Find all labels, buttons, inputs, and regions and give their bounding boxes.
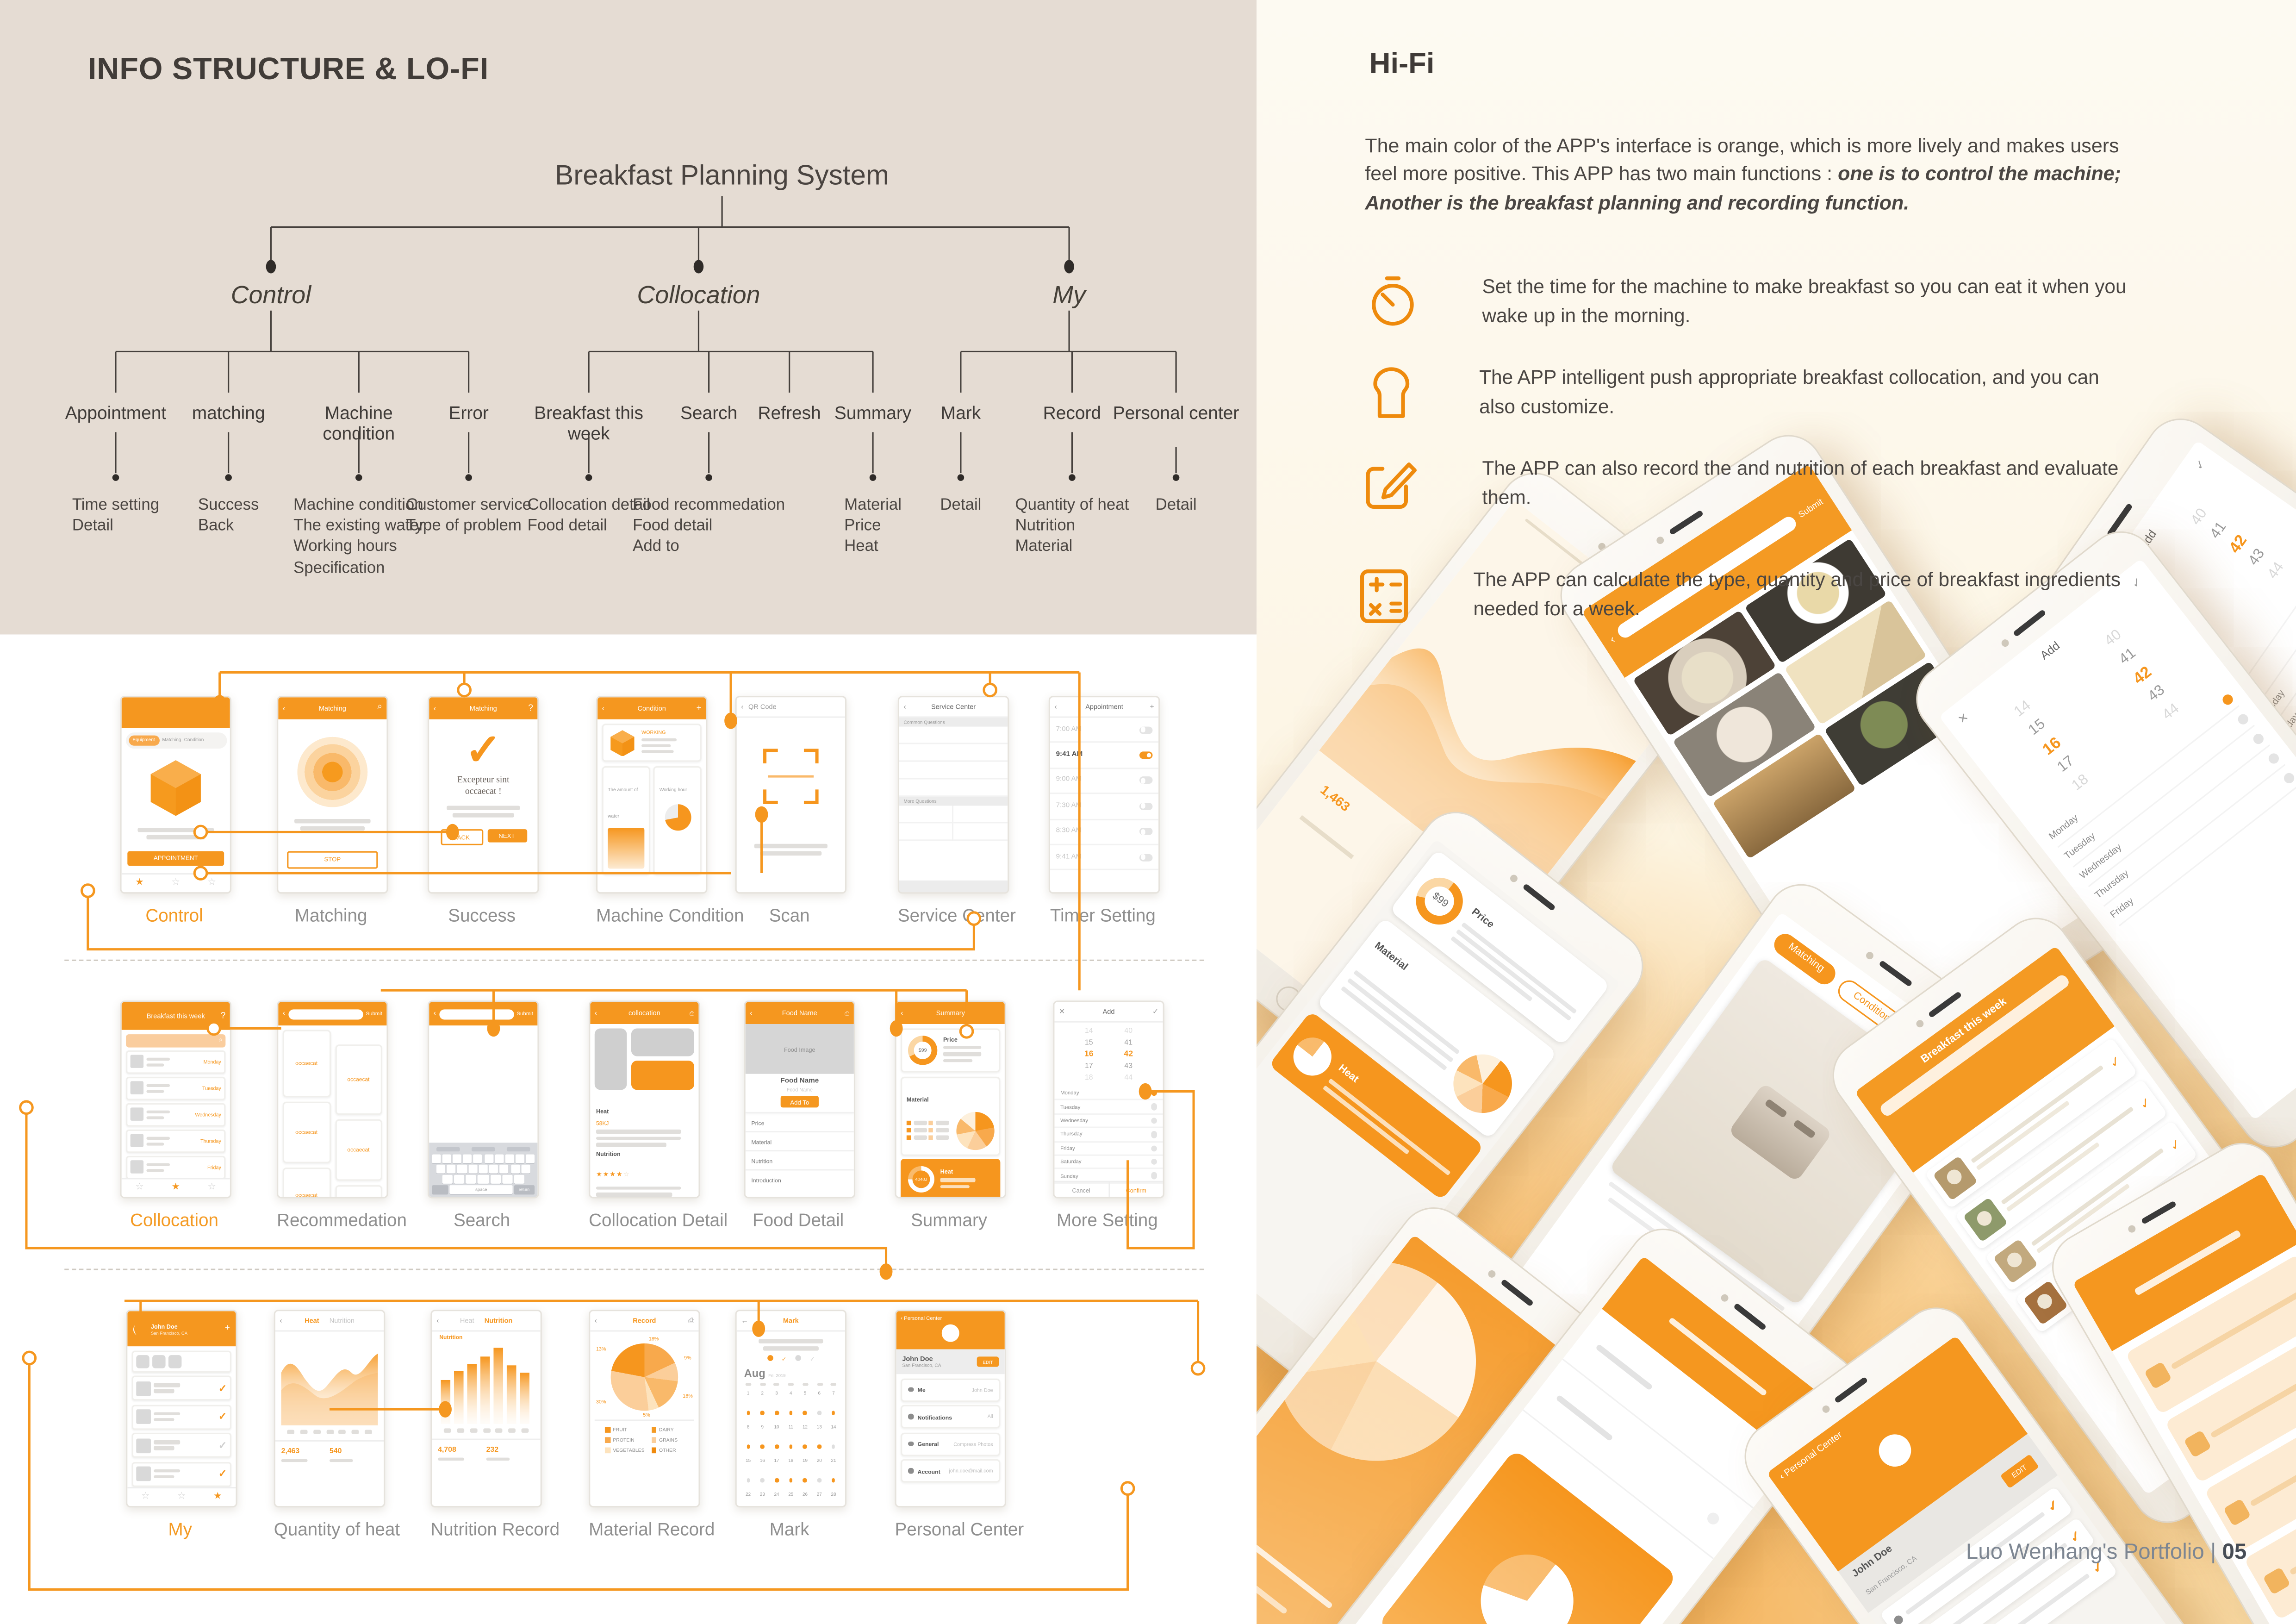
- calculator-icon: [1356, 565, 1412, 627]
- lofi-screen-collocation: Breakfast this week? ⌕ MondayTuesdayWedn…: [120, 1000, 228, 1230]
- wireframe-caption: Scan: [735, 906, 844, 926]
- row-divider: [64, 960, 1204, 961]
- wireframe-thumbnail: ‹Record⎙ 18% 9% 16% 5% 30% 13% FRUITDAIR…: [589, 1310, 700, 1507]
- phone-earpiece: [1523, 883, 1556, 911]
- phone-earpiece: [1928, 991, 1962, 1018]
- lofi-screen-more-setting: ✕Add✓ 1415161718 4041424344 MondayTuesda…: [1053, 1000, 1161, 1230]
- tree-leaf: matching: [158, 404, 299, 424]
- tree-branch-control: Control: [231, 281, 311, 311]
- tree-root-label: Breakfast Planning System: [555, 161, 889, 194]
- wireframe-thumbnail: ‹Submit spacereturn: [428, 1000, 539, 1198]
- wireframe-thumbnail: ‹Submit occaecatoccaecatoccaecat occaeca…: [277, 1000, 388, 1198]
- phone-camera: [1821, 1404, 1831, 1414]
- wireframe-thumbnail: Equipment MatchingCondition APPOINTMENT …: [120, 696, 231, 893]
- tree-leaf: Personal center: [1106, 404, 1246, 424]
- feature-text: The APP intelligent push appropriate bre…: [1479, 363, 2135, 421]
- tree-leaf-details: Customer serviceType of problem: [406, 495, 531, 537]
- feature-text: Set the time for the machine to make bre…: [1482, 273, 2138, 330]
- lofi-screen-matching: ‹Matching⌕ STOPMatching: [277, 696, 385, 926]
- lofi-screen-food-detail: ‹Food Name⎙ Food Image Food Name Food Na…: [744, 1000, 852, 1230]
- phone-earpiece: [1668, 510, 1702, 535]
- tree-leaf: Breakfast this week: [518, 404, 659, 443]
- wireframe-thumbnail: ‹ Personal Center John DoeSan Francisco,…: [895, 1310, 1007, 1507]
- wireframe-caption: Material Record: [589, 1519, 697, 1540]
- lofi-screen-collocation-detail: ‹collocation⎙ Heat 58KJ Nutrition ★★★★☆ …: [589, 1000, 697, 1230]
- phone-camera: [1654, 536, 1664, 546]
- wireframe-thumbnail: ‹Condition+ WORKING The amount of water …: [596, 696, 708, 893]
- lofi-screen-scan: ‹QR Code Scan: [735, 696, 844, 926]
- row-divider: [64, 1268, 1204, 1270]
- hifi-heading: Hi-Fi: [1369, 48, 1435, 82]
- phone-earpiece: [2141, 1200, 2177, 1224]
- feature-item: The APP can also record the and nutritio…: [1362, 454, 2138, 513]
- page-number: 05: [2222, 1540, 2247, 1565]
- tree-leaf-details: Food recommedationFood detailAdd to: [633, 495, 785, 558]
- wireframe-caption: Quantity of heat: [274, 1519, 382, 1540]
- phone-camera: [1509, 873, 1519, 883]
- wireframe-thumbnail: Breakfast this week? ⌕ MondayTuesdayWedn…: [120, 1000, 231, 1198]
- footer-divider: |: [2210, 1540, 2216, 1565]
- info-structure-panel: INFO STRUCTURE & LO-FI Breakfast Plannin…: [0, 0, 1257, 1624]
- tree-leaf-details: Collocation detailFood detail: [528, 495, 650, 537]
- wireframe-thumbnail: ‹Matching? ✓ Excepteur sintoccaecat ! BA…: [428, 696, 539, 893]
- feature-text: The APP can calculate the type, quantity…: [1473, 565, 2129, 623]
- lofi-screen-my: John DoeSan Francisco, CA + ✓✓✓✓ ☆☆★My: [126, 1310, 234, 1540]
- lofi-screen-quantity-of-heat: ‹HeatNutrition 2,463 540Quantity of heat: [274, 1310, 382, 1540]
- phone-earpiece: [1878, 959, 1911, 985]
- feature-text: The APP can also record the and nutritio…: [1482, 454, 2138, 512]
- hifi-panel: 1,463 546 ‹Submit ✕Add✓ 1415161718404142…: [1257, 0, 2296, 1624]
- tree-leaf-details: Quantity of heatNutritionMaterial: [1015, 495, 1129, 558]
- wireframe-thumbnail: ‹HeatNutrition 2,463 540: [274, 1310, 386, 1507]
- portfolio-page: INFO STRUCTURE & LO-FI Breakfast Plannin…: [0, 0, 2296, 1624]
- lofi-screen-mark: ←Mark ✓ ✓ AugFri. 2019 12345678910111213…: [735, 1310, 844, 1540]
- lofi-screen-search: ‹Submit spacereturnSearch: [428, 1000, 536, 1230]
- phone-earpiece: [1501, 1279, 1534, 1306]
- wireframe-caption: Food Detail: [744, 1210, 852, 1230]
- wireframe-thumbnail: ‹Matching⌕ STOP: [277, 696, 388, 893]
- lofi-screen-summary: ‹Summary Price Material 4040J HeatSummar…: [895, 1000, 1003, 1230]
- wireframe-thumbnail: John DoeSan Francisco, CA + ✓✓✓✓ ☆☆★: [126, 1310, 237, 1507]
- tree-leaf-details: MaterialPriceHeat: [844, 495, 902, 558]
- lofi-screen-nutrition-record: ‹HeatNutrition Nutrition 4,708 232Nutrit…: [430, 1310, 539, 1540]
- wireframe-thumbnail: ‹Service Center Common Questions More Qu…: [898, 696, 1009, 893]
- lofi-screen-success: ‹Matching? ✓ Excepteur sintoccaecat ! BA…: [428, 696, 536, 926]
- tree-leaf-details: SuccessBack: [198, 495, 259, 537]
- wireframe-caption: Nutrition Record: [430, 1519, 539, 1540]
- wireframe-caption: My: [126, 1519, 234, 1540]
- phone-earpiece: [1834, 1376, 1868, 1403]
- feature-item: The APP can calculate the type, quantity…: [1356, 565, 2129, 627]
- phone-camera: [1487, 1269, 1497, 1279]
- phone-camera: [1863, 949, 1873, 960]
- feature-item: The APP intelligent push appropriate bre…: [1365, 363, 2135, 422]
- wireframe-thumbnail: ‹QR Code: [735, 696, 847, 893]
- wireframe-thumbnail: ‹collocation⎙ Heat 58KJ Nutrition ★★★★☆ …: [589, 1000, 700, 1198]
- wireframe-caption: Collocation: [120, 1210, 228, 1230]
- tree-branch-collocation: Collocation: [637, 281, 760, 311]
- wireframe-caption: Mark: [735, 1519, 844, 1540]
- tree-leaf: Error: [398, 404, 539, 424]
- lofi-screen-material-record: ‹Record⎙ 18% 9% 16% 5% 30% 13% FRUITDAIR…: [589, 1310, 697, 1540]
- phone-earpiece: [1732, 1302, 1766, 1330]
- wireframe-caption: Recommedation: [277, 1210, 385, 1230]
- wireframe-thumbnail: ‹HeatNutrition Nutrition 4,708 232: [430, 1310, 542, 1507]
- edit-icon: [1362, 454, 1421, 513]
- hifi-intro-paragraph: The main color of the APP's interface is…: [1365, 132, 2147, 217]
- wireframe-caption: Timer Setting: [1049, 906, 1157, 926]
- timer-icon: [1365, 273, 1420, 331]
- phone-camera: [1718, 1293, 1729, 1303]
- wireframe-thumbnail: ‹Appointment+ 7:00 AM9:41 AM9:00 AM7:30 …: [1049, 696, 1160, 893]
- lofi-screen-control: Equipment MatchingCondition APPOINTMENT …: [120, 696, 228, 926]
- wireframe-caption: Collocation Detail: [589, 1210, 697, 1230]
- wireframe-caption: More Setting: [1053, 1210, 1161, 1230]
- wireframe-thumbnail: ‹Food Name⎙ Food Image Food Name Food Na…: [744, 1000, 856, 1198]
- tree-leaf-details: Time settingDetail: [72, 495, 159, 537]
- bread-icon: [1365, 363, 1418, 422]
- wireframe-caption: Success: [428, 906, 536, 926]
- lofi-screen-service-center: ‹Service Center Common Questions More Qu…: [898, 696, 1006, 926]
- wireframe-thumbnail: ←Mark ✓ ✓ AugFri. 2019 12345678910111213…: [735, 1310, 847, 1507]
- wireframe-thumbnail: ‹Summary Price Material 4040J Heat: [895, 1000, 1007, 1198]
- tree-branch-my: My: [1052, 281, 1086, 311]
- wireframe-caption: Matching: [277, 906, 385, 926]
- wireframe-caption: Search: [428, 1210, 536, 1230]
- lofi-screen-machine-condition: ‹Condition+ WORKING The amount of water …: [596, 696, 704, 926]
- tree-leaf-details: Machine conditionThe existing waterWorki…: [293, 495, 424, 579]
- wireframe-caption: Service Center: [898, 906, 1006, 926]
- lofi-screen-personal-center: ‹ Personal Center John DoeSan Francisco,…: [895, 1310, 1003, 1540]
- feature-item: Set the time for the machine to make bre…: [1365, 273, 2138, 331]
- phone-camera: [2127, 1224, 2137, 1234]
- wireframe-caption: Personal Center: [895, 1519, 1003, 1540]
- page-footer: Luo Wenhang's Portfolio | 05: [1966, 1540, 2246, 1565]
- phone-camera: [1999, 638, 2009, 649]
- tree-leaf-details: Detail: [1156, 495, 1197, 516]
- lofi-screen-timer-setting: ‹Appointment+ 7:00 AM9:41 AM9:00 AM7:30 …: [1049, 696, 1157, 926]
- wireframe-caption: Control: [120, 906, 228, 926]
- wireframe-caption: Summary: [895, 1210, 1003, 1230]
- phone-camera: [1915, 1018, 1925, 1029]
- left-section-title: INFO STRUCTURE & LO-FI: [88, 53, 489, 88]
- lofi-screen-recommedation: ‹Submit occaecatoccaecatoccaecat occaeca…: [277, 1000, 385, 1230]
- wireframe-thumbnail: ✕Add✓ 1415161718 4041424344 MondayTuesda…: [1053, 1000, 1164, 1198]
- portfolio-name: Luo Wenhang's Portfolio: [1966, 1540, 2204, 1565]
- tree-leaf-details: Detail: [940, 495, 981, 516]
- wireframe-caption: Machine Condition: [596, 906, 704, 926]
